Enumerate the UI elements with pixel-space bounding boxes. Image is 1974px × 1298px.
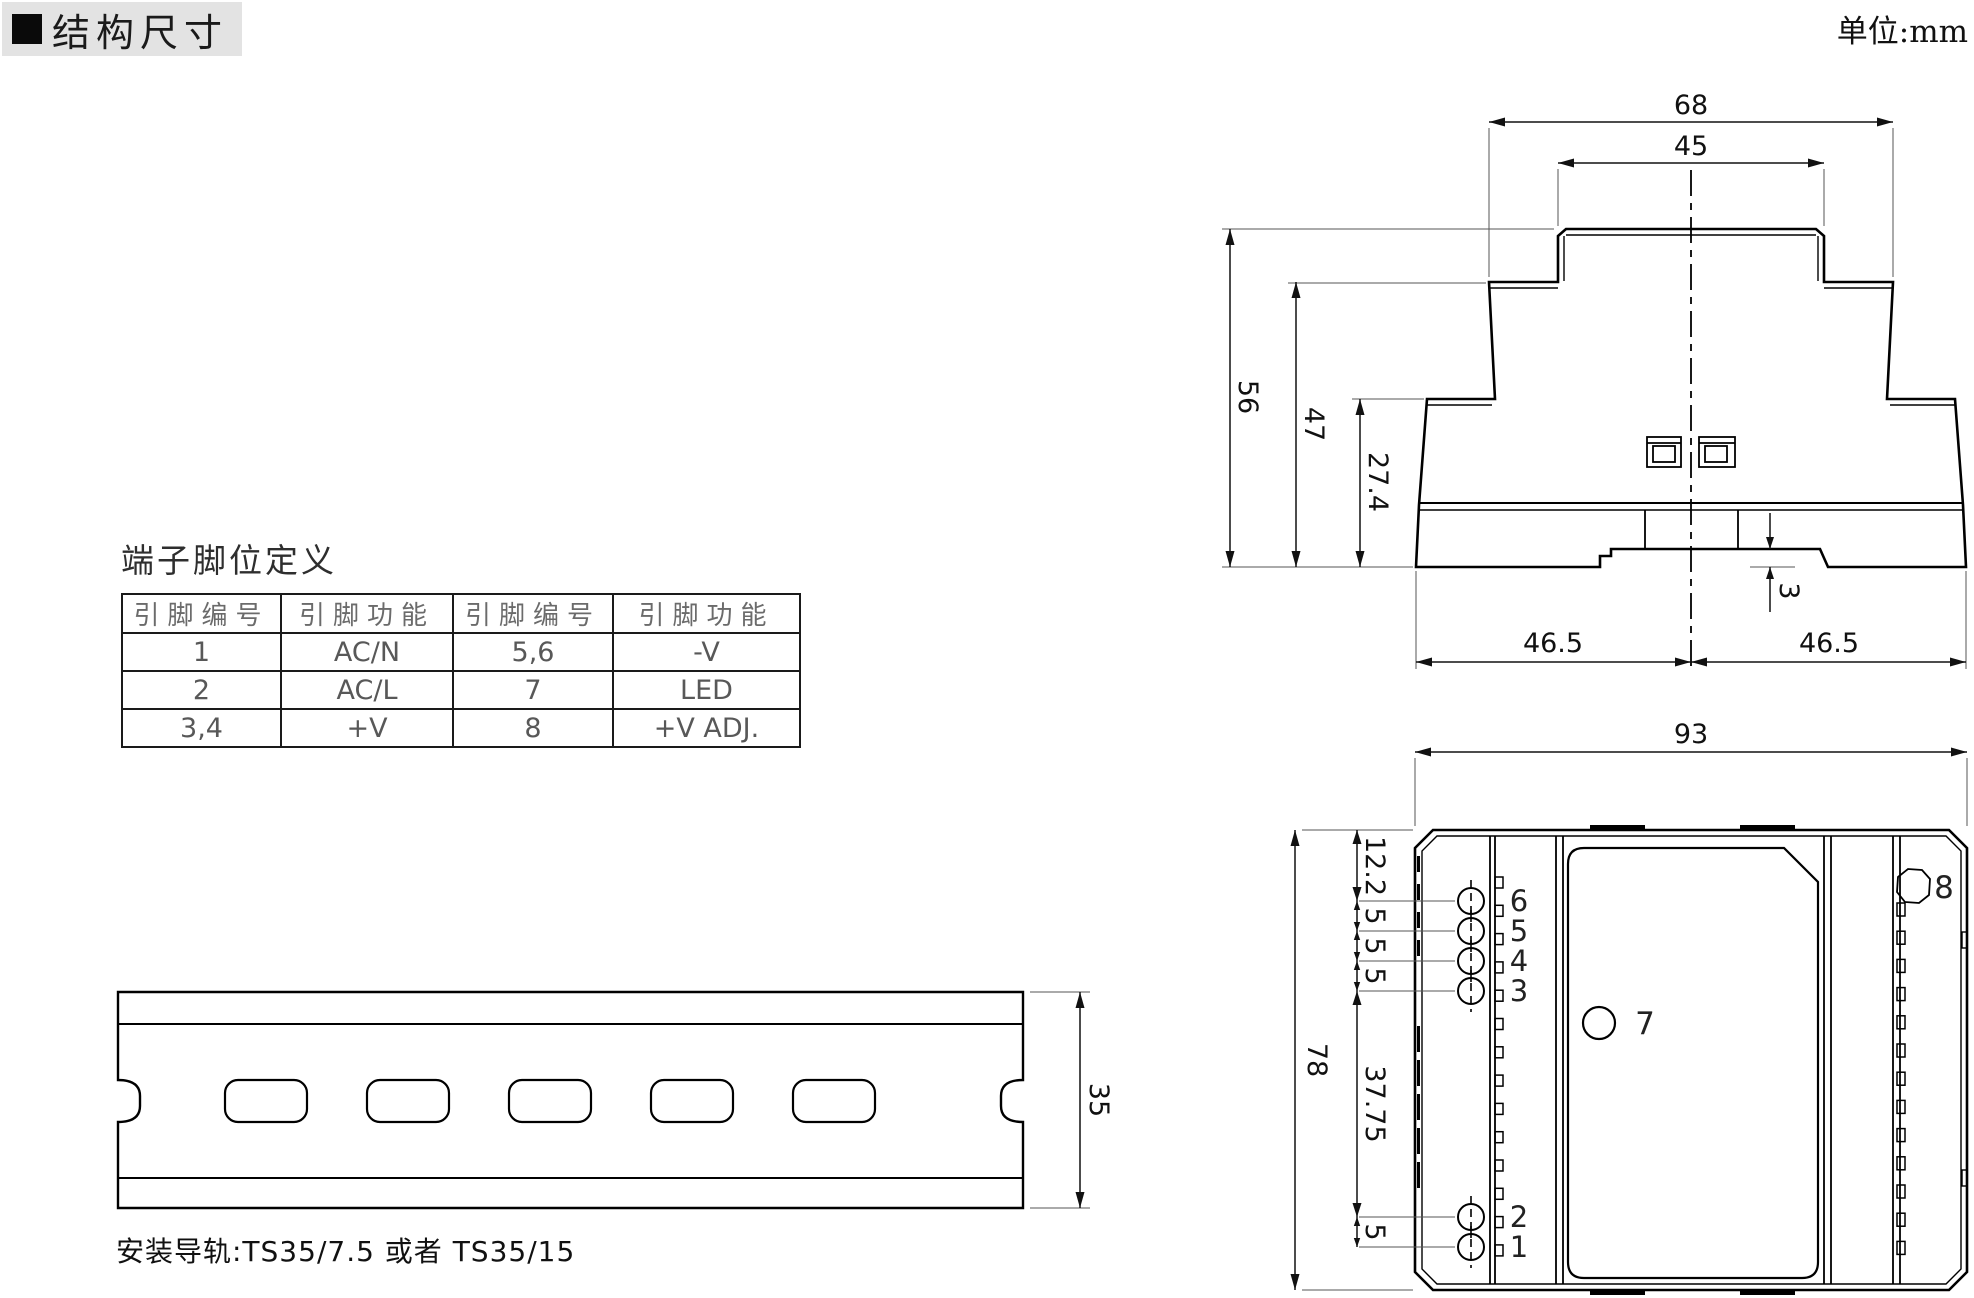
vent-slot xyxy=(1897,1044,1905,1057)
dimension-arrowhead xyxy=(1353,1203,1362,1217)
dimension-arrowhead xyxy=(1226,551,1235,567)
dimension-arrowhead xyxy=(1356,399,1365,415)
dimension-arrowhead xyxy=(1292,551,1301,567)
pin-label-5: 5 xyxy=(1510,914,1528,948)
front-cover-panel xyxy=(1568,848,1818,1278)
pin-label-6: 6 xyxy=(1510,884,1528,918)
terminal-cage-tab xyxy=(1495,934,1503,945)
technical-drawing-canvas: 68 45 56 47 27.4 3 46.5 46.5 xyxy=(0,0,1974,1298)
front-outline xyxy=(1415,830,1967,1290)
terminal-cage-tab xyxy=(1495,962,1503,973)
dim-78: 78 xyxy=(1301,1043,1332,1077)
vent-slot xyxy=(1897,1157,1905,1170)
vent-slot xyxy=(1897,1185,1905,1198)
terminal-cage-tab xyxy=(1495,1019,1503,1030)
terminal-cage-tab xyxy=(1495,990,1503,1001)
dimension-arrowhead xyxy=(1877,118,1893,127)
dim-5b: 5 xyxy=(1359,937,1390,954)
din-rail-drawing xyxy=(118,992,1090,1208)
dim-5a: 5 xyxy=(1359,907,1390,924)
dimension-arrowhead xyxy=(1353,991,1362,1005)
dimension-arrowhead xyxy=(1076,1192,1085,1208)
vent-slot xyxy=(1897,931,1905,944)
dimension-arrowhead xyxy=(1415,748,1431,757)
dim-35: 35 xyxy=(1083,1083,1114,1117)
dimension-arrowhead xyxy=(1558,159,1574,168)
front-body-seams xyxy=(1490,836,1900,1284)
dimension-drawing-sheet: 结构尺寸 单位:mm 端子脚位定义 引脚编号 引脚功能 引脚编号 引脚功能 1 … xyxy=(0,0,1974,1298)
rail-slot xyxy=(225,1080,307,1122)
pin-label-3: 3 xyxy=(1510,974,1528,1008)
side-dimension-arrows xyxy=(1226,118,1967,667)
dim-5c: 5 xyxy=(1359,967,1390,984)
rail-slot xyxy=(651,1080,733,1122)
front-dimension-lines xyxy=(1295,752,1967,1290)
dim-37-75: 37.75 xyxy=(1359,1065,1390,1142)
vent-slot xyxy=(1897,903,1905,916)
dim-46-5-right: 46.5 xyxy=(1799,628,1859,659)
terminal-cage-tab xyxy=(1495,1160,1503,1171)
dimension-arrowhead xyxy=(1951,748,1967,757)
dim-56: 56 xyxy=(1232,380,1263,414)
pin-label-4: 4 xyxy=(1510,944,1528,978)
dim-45: 45 xyxy=(1674,131,1708,162)
mounting-tabs xyxy=(1590,827,1795,1293)
side-dimension-lines xyxy=(1230,122,1966,662)
side-extension-lines xyxy=(1222,128,1966,669)
vent-slot xyxy=(1897,1100,1905,1113)
front-repeated-details xyxy=(1419,856,1906,1268)
pin-label-1: 1 xyxy=(1510,1230,1528,1264)
rail-slot xyxy=(509,1080,591,1122)
vent-slot xyxy=(1897,959,1905,972)
dimension-arrowhead xyxy=(1356,551,1365,567)
dim-47: 47 xyxy=(1298,407,1329,441)
front-view-dimensions: 93 78 12.2 5 5 5 37.75 5 6 5 4 3 2 1 7 8 xyxy=(1291,719,1968,1290)
led-label: 7 xyxy=(1635,1006,1655,1042)
dimension-arrowhead xyxy=(1808,159,1824,168)
dim-5d: 5 xyxy=(1359,1223,1390,1240)
led-indicator-circle xyxy=(1583,1007,1615,1039)
dimension-arrowhead xyxy=(1675,658,1691,667)
terminal-cage-tab xyxy=(1495,1075,1503,1086)
vent-slot xyxy=(1897,988,1905,1001)
terminal-cage-tab xyxy=(1495,905,1503,916)
dimension-arrowhead xyxy=(1291,830,1300,846)
dimension-arrowhead xyxy=(1489,118,1505,127)
vent-slot xyxy=(1897,1129,1905,1142)
dimension-arrowhead xyxy=(1291,1274,1300,1290)
dimension-arrowhead xyxy=(1766,537,1774,549)
rail-slot xyxy=(793,1080,875,1122)
dimension-arrowhead xyxy=(1950,658,1966,667)
pin-label-2: 2 xyxy=(1510,1200,1528,1234)
dim-12-2: 12.2 xyxy=(1359,836,1390,896)
dim-68: 68 xyxy=(1674,90,1708,121)
vent-slot xyxy=(1897,1241,1905,1254)
side-view-dimensions: 68 45 56 47 27.4 3 46.5 46.5 xyxy=(1222,90,1966,669)
terminal-cage-tab xyxy=(1495,1188,1503,1199)
terminal-cage-tab xyxy=(1495,1047,1503,1058)
vent-slot xyxy=(1897,1016,1905,1029)
voltage-adjust-pot xyxy=(1897,869,1930,903)
vent-slot xyxy=(1897,1213,1905,1226)
side-view-drawing xyxy=(1416,170,1966,670)
rail-slot xyxy=(367,1080,449,1122)
dim-3: 3 xyxy=(1773,582,1804,599)
dimension-arrowhead xyxy=(1691,658,1707,667)
terminal-cage-tab xyxy=(1495,877,1503,888)
terminal-cage-tab xyxy=(1495,1132,1503,1143)
rail-extension-lines xyxy=(1030,992,1090,1208)
dim-93: 93 xyxy=(1674,719,1708,750)
dimension-arrowhead xyxy=(1076,992,1085,1008)
terminal-cage-tab xyxy=(1495,1217,1503,1228)
pot-label: 8 xyxy=(1934,870,1954,906)
vent-slot xyxy=(1897,1072,1905,1085)
dimension-arrowhead xyxy=(1292,282,1301,298)
front-view-drawing xyxy=(1415,827,1967,1293)
rail-slots xyxy=(225,1080,875,1122)
dimension-arrowhead xyxy=(1226,229,1235,245)
rail-fold-lines xyxy=(118,1024,1023,1178)
dimension-arrowhead xyxy=(1416,658,1432,667)
terminal-cage-tab xyxy=(1495,1245,1503,1256)
dimension-arrowhead xyxy=(1766,567,1774,579)
terminal-cage-tab xyxy=(1495,1103,1503,1114)
dim-46-5-left: 46.5 xyxy=(1523,628,1583,659)
dim-27-4: 27.4 xyxy=(1362,452,1393,512)
